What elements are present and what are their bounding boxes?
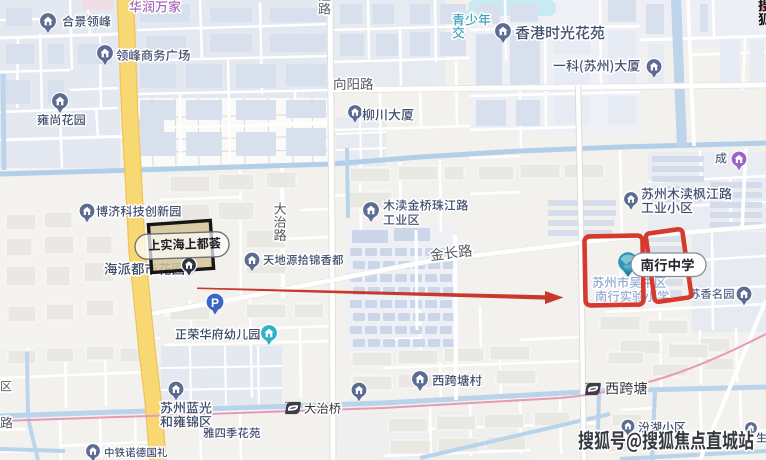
svg-text:P: P (211, 296, 219, 310)
